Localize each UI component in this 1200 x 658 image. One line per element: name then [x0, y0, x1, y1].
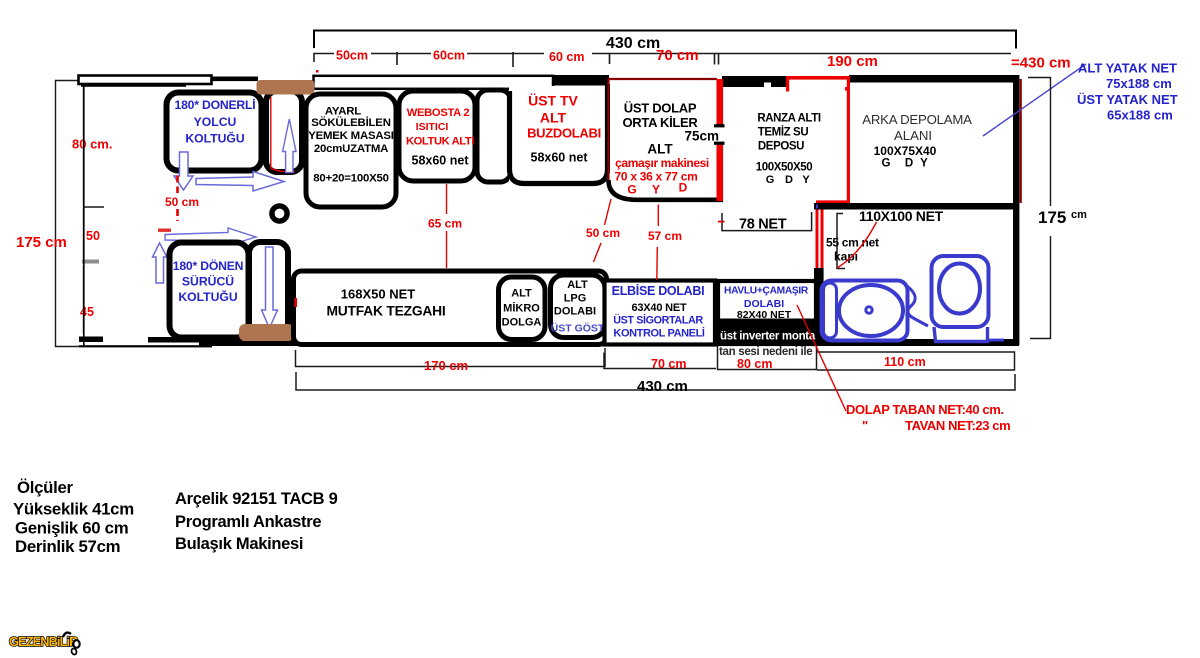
- svg-text:100X50X50: 100X50X50: [756, 162, 813, 174]
- svg-text:DEPOSU: DEPOSU: [758, 141, 804, 153]
- svg-text:ÜST GÖST: ÜST GÖST: [551, 322, 605, 335]
- svg-text:60 cm: 60 cm: [549, 50, 584, 64]
- svg-text:KOLTUĞU: KOLTUĞU: [185, 131, 245, 146]
- svg-text:20cmUZATMA: 20cmUZATMA: [314, 143, 388, 155]
- svg-text:180* DÖNEN: 180* DÖNEN: [173, 258, 243, 273]
- svg-text:MUTFAK TEZGAHI: MUTFAK TEZGAHI: [326, 304, 445, 319]
- svg-text:80+20=100X50: 80+20=100X50: [313, 173, 389, 185]
- svg-text:58x60 net: 58x60 net: [412, 154, 470, 168]
- svg-text:78 NET: 78 NET: [739, 217, 787, 233]
- svg-text:ALANI: ALANI: [894, 128, 932, 143]
- svg-text:KONTROL PANELİ: KONTROL PANELİ: [613, 327, 705, 340]
- svg-text:D: D: [905, 158, 913, 170]
- svg-text:ÜST TV: ÜST TV: [528, 93, 578, 109]
- svg-text:63X40 NET: 63X40 NET: [631, 302, 687, 314]
- svg-text:AYARL: AYARL: [325, 106, 361, 118]
- svg-text:G: G: [882, 158, 891, 170]
- svg-text:TEMİZ SU: TEMİZ SU: [758, 126, 809, 139]
- svg-text:ÜST DOLAP: ÜST DOLAP: [624, 101, 697, 116]
- svg-text:YEMEK MASASI: YEMEK MASASI: [308, 130, 394, 142]
- svg-text:ALT YATAK NET: ALT YATAK NET: [1078, 61, 1177, 76]
- svg-text:70 cm: 70 cm: [656, 47, 699, 64]
- svg-text:75x188 cm: 75x188 cm: [1106, 76, 1172, 91]
- svg-text:45: 45: [80, 305, 94, 319]
- svg-text:110 cm: 110 cm: [884, 355, 926, 369]
- svg-text:180* DONERLİ: 180* DONERLİ: [175, 97, 256, 112]
- svg-text:Y: Y: [652, 183, 660, 197]
- svg-text:57 cm: 57 cm: [648, 229, 682, 243]
- svg-text:Genişlik 60 cm: Genişlik 60 cm: [15, 519, 128, 538]
- svg-text:75cm: 75cm: [684, 129, 719, 144]
- svg-text:ELBİSE DOLABI: ELBİSE DOLABI: [612, 283, 705, 298]
- svg-text:RANZA ALTI: RANZA ALTI: [757, 113, 820, 125]
- svg-text:Programlı Ankastre: Programlı Ankastre: [175, 513, 321, 531]
- svg-text:=430 cm: =430 cm: [1011, 55, 1071, 72]
- svg-text:WEBOSTA 2: WEBOSTA 2: [407, 107, 470, 119]
- svg-text:Ölçüler: Ölçüler: [17, 478, 73, 497]
- svg-text:MİKRO: MİKRO: [503, 302, 540, 315]
- svg-text:ALT: ALT: [511, 288, 532, 300]
- svg-text:KOLTUĞU: KOLTUĞU: [178, 289, 238, 304]
- svg-text:cm: cm: [1071, 209, 1087, 221]
- svg-text:65x188 cm: 65x188 cm: [1107, 108, 1173, 123]
- svg-text:430 cm: 430 cm: [606, 35, 660, 52]
- svg-text:Arçelik 92151 TACB 9: Arçelik 92151 TACB 9: [175, 490, 338, 508]
- svg-text:HAVLU+ÇAMAŞIR: HAVLU+ÇAMAŞIR: [724, 286, 809, 297]
- svg-text:50 cm: 50 cm: [586, 226, 620, 240]
- svg-text:110X100 NET: 110X100 NET: [859, 208, 944, 224]
- svg-text:SÖKÜLEBİLEN: SÖKÜLEBİLEN: [311, 116, 390, 129]
- svg-text:üst inverter monta: üst inverter monta: [720, 331, 816, 343]
- svg-text:D: D: [785, 174, 793, 186]
- svg-text:LPG: LPG: [564, 293, 587, 305]
- svg-text:65 cm: 65 cm: [428, 217, 462, 231]
- svg-text:55 cm net: 55 cm net: [826, 236, 879, 250]
- svg-text:82X40 NET: 82X40 NET: [737, 309, 792, 321]
- svg-text:DOLABI: DOLABI: [554, 306, 596, 318]
- svg-text:ARKA DEPOLAMA: ARKA DEPOLAMA: [862, 112, 972, 127]
- svg-text:175 cm: 175 cm: [16, 234, 67, 251]
- svg-text:ISITICI: ISITICI: [416, 121, 449, 133]
- svg-text:DOLGA: DOLGA: [502, 317, 542, 329]
- svg-text:GEZENBiLiR: GEZENBiLiR: [9, 634, 78, 649]
- svg-text:YOLCU: YOLCU: [194, 115, 237, 129]
- svg-text:ALT: ALT: [567, 279, 588, 291]
- svg-text:DOLAP TABAN NET:40 cm.: DOLAP TABAN NET:40 cm.: [846, 402, 1004, 417]
- svg-text:Bulaşık Makinesi: Bulaşık Makinesi: [175, 535, 303, 553]
- svg-text:G: G: [766, 174, 775, 186]
- svg-text:Y: Y: [802, 174, 810, 186]
- svg-text:Y: Y: [920, 158, 928, 170]
- svg-text:50 cm: 50 cm: [165, 195, 199, 209]
- svg-text:175: 175: [1038, 208, 1066, 227]
- svg-text:168X50 NET: 168X50 NET: [341, 287, 415, 302]
- svg-text:BUZDOLABI: BUZDOLABI: [527, 126, 601, 141]
- svg-text:170 cm: 170 cm: [424, 358, 468, 373]
- svg-text:58x60 net: 58x60 net: [531, 151, 589, 165]
- svg-text:ÜST YATAK NET: ÜST YATAK NET: [1077, 92, 1178, 107]
- svg-text:SÜRÜCÜ: SÜRÜCÜ: [182, 274, 234, 289]
- svg-text:ALT: ALT: [647, 142, 673, 157]
- svg-text:TAVAN NET:23 cm: TAVAN NET:23 cm: [905, 418, 1010, 433]
- svg-text:60cm: 60cm: [433, 49, 465, 63]
- svg-text:80 cm: 80 cm: [737, 357, 772, 371]
- svg-text:100X75X40: 100X75X40: [874, 144, 937, 158]
- svg-text:50: 50: [86, 229, 100, 243]
- svg-text:ÜST SİGORTALAR: ÜST SİGORTALAR: [613, 314, 703, 327]
- svg-text:70 cm: 70 cm: [651, 357, 686, 371]
- svg-text:50cm: 50cm: [336, 49, 368, 63]
- svg-text:D: D: [679, 181, 688, 195]
- svg-text:Yükseklik 41cm: Yükseklik 41cm: [13, 500, 134, 519]
- svg-text:ALT: ALT: [540, 110, 567, 126]
- svg-text:G: G: [627, 183, 636, 197]
- svg-text:çamaşır makinesi: çamaşır makinesi: [615, 156, 709, 170]
- svg-text:": ": [862, 418, 868, 433]
- svg-text:KOLTUK ALTI: KOLTUK ALTI: [406, 136, 474, 148]
- svg-text:430 cm: 430 cm: [637, 378, 688, 395]
- svg-text:190 cm: 190 cm: [827, 53, 878, 70]
- svg-text:Derinlik 57cm: Derinlik 57cm: [15, 537, 120, 556]
- svg-text:80 cm.: 80 cm.: [72, 137, 112, 152]
